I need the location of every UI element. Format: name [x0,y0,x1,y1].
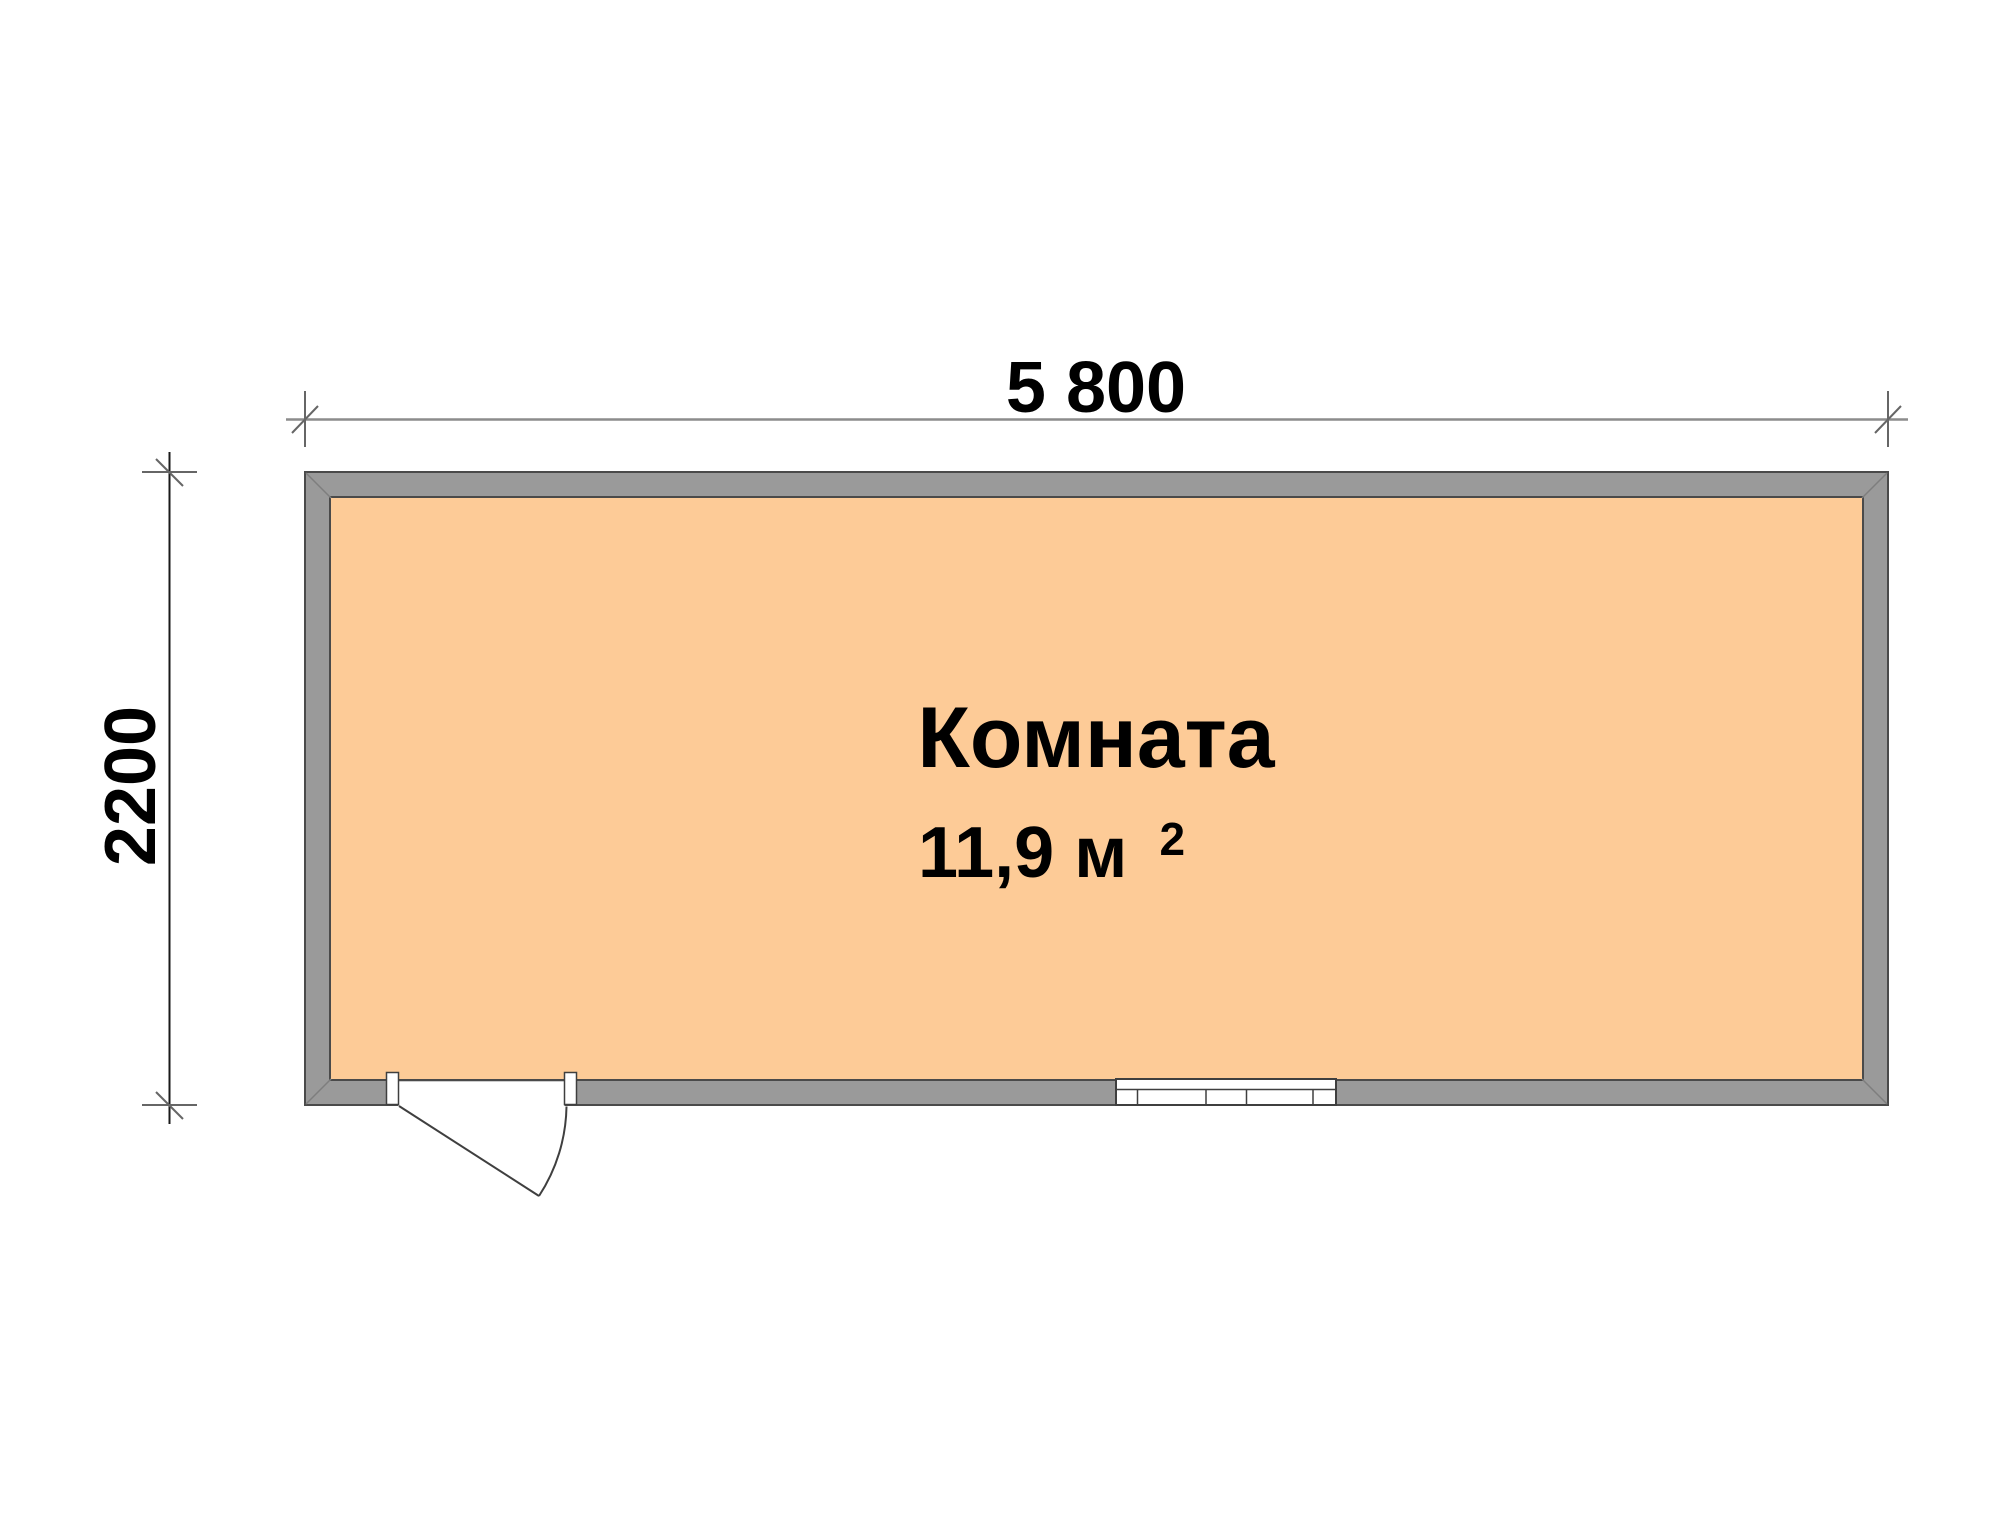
room-area: 11,9 м 2 [918,813,1185,893]
door-swing-arc [539,1107,567,1197]
door-jamb-left [387,1073,399,1105]
room-name: Комната [917,690,1275,786]
room [305,472,1888,1105]
room-floor [330,497,1863,1080]
height-dimension: 2200 [91,452,197,1124]
window-frame [1116,1079,1336,1105]
door-opening [399,1082,565,1113]
door-jamb-right [565,1073,577,1105]
floor-plan-page: 5 800 2200 [0,0,2000,1538]
height-dimension-label: 2200 [91,706,171,866]
floor-plan: 5 800 2200 [0,0,2000,1538]
window [1116,1079,1336,1105]
room-area-value: 11,9 м [918,813,1127,893]
door-leaf [399,1106,539,1196]
door [387,1073,577,1197]
width-dimension-label: 5 800 [1006,348,1186,428]
room-area-superscript: 2 [1159,813,1185,865]
width-dimension: 5 800 [286,348,1908,447]
